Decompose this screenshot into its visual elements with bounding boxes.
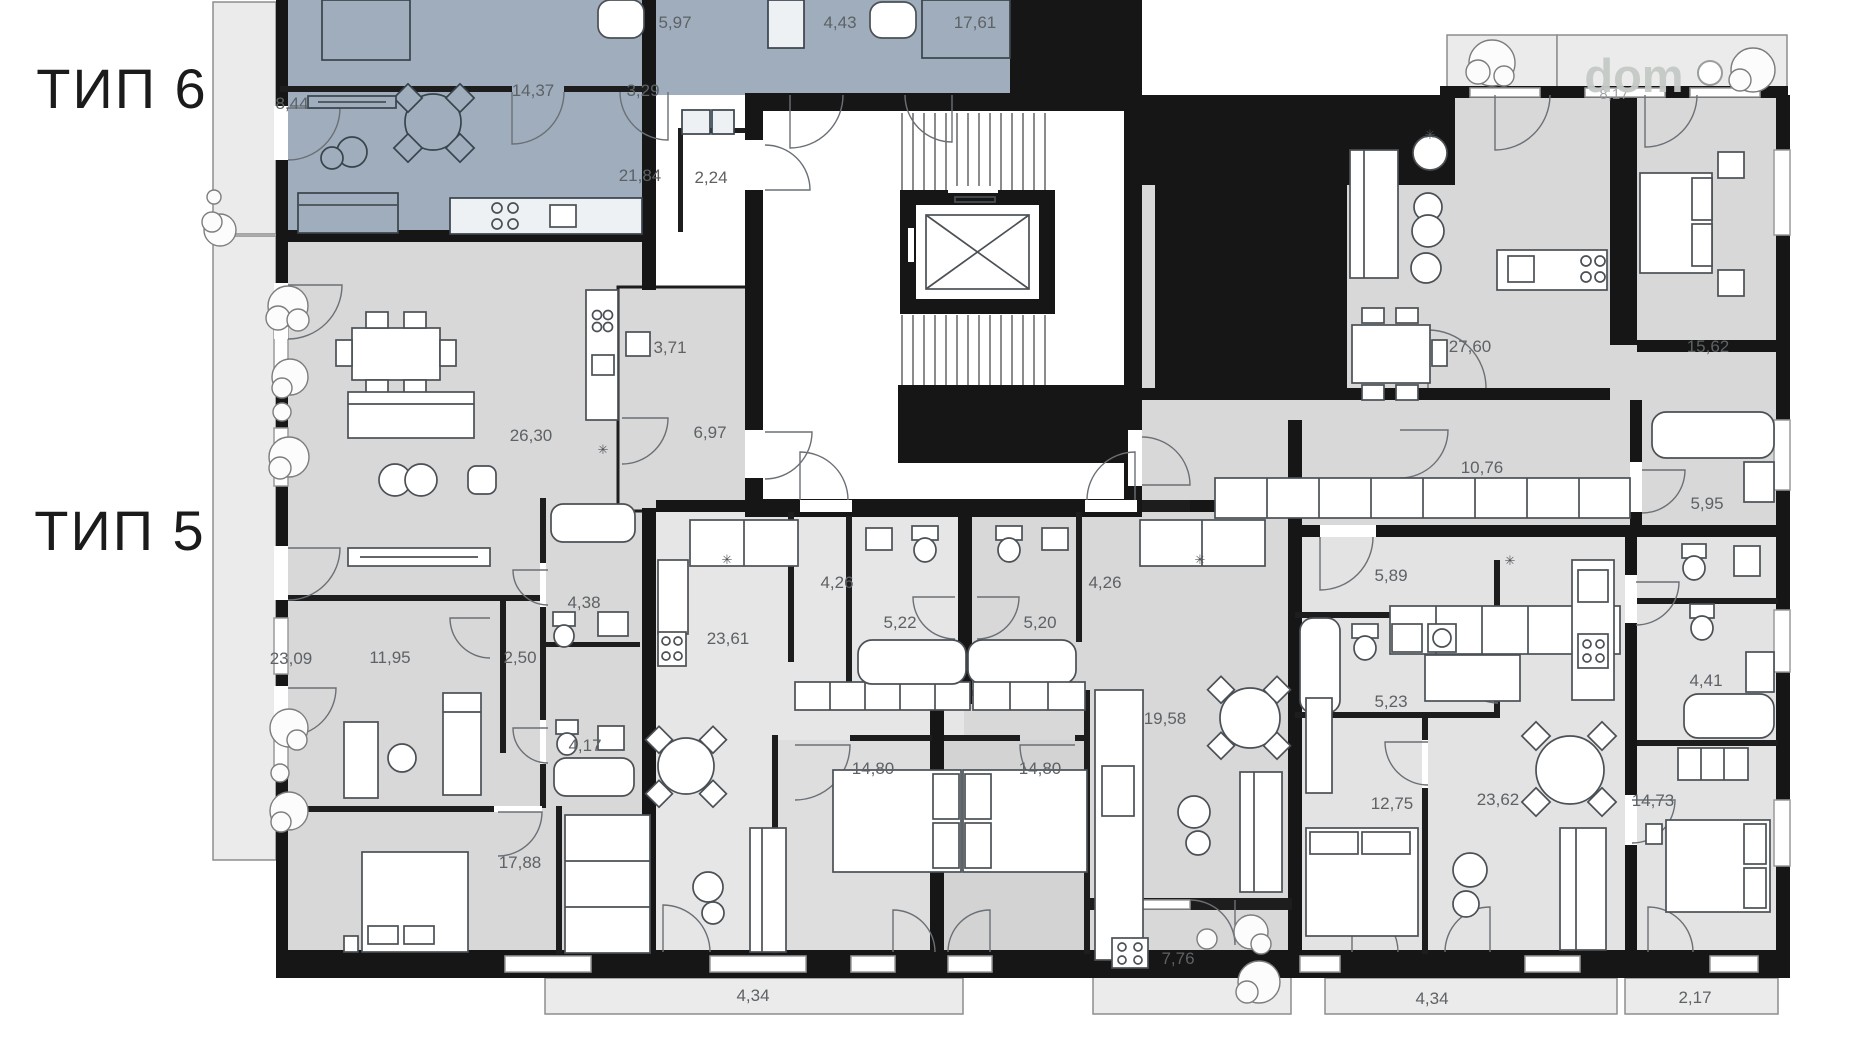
dining-table-icon bbox=[352, 328, 440, 380]
dom-logo-circle bbox=[1698, 61, 1722, 85]
area-label: 2,50 bbox=[503, 648, 536, 667]
area-label: 21,84 bbox=[619, 166, 662, 185]
vent-symbol: ✳ bbox=[1425, 127, 1436, 142]
area-label: 7,76 bbox=[1161, 949, 1194, 968]
area-label: 5,89 bbox=[1374, 566, 1407, 585]
sink-icon bbox=[1744, 462, 1774, 502]
area-label: 4,17 bbox=[568, 736, 601, 755]
area-label: 8,44 bbox=[275, 94, 308, 113]
wardrobe-icon bbox=[1215, 478, 1630, 518]
area-label: 4,34 bbox=[736, 986, 769, 1005]
sink-icon bbox=[1392, 624, 1422, 652]
type6-balcony bbox=[213, 2, 276, 234]
desk-icon bbox=[344, 722, 378, 798]
pouf-icon bbox=[693, 872, 723, 902]
dining-table-icon bbox=[1352, 325, 1430, 383]
area-label: 19,58 bbox=[1144, 709, 1187, 728]
sink-icon bbox=[1102, 766, 1134, 816]
type6-title: ТИП 6 bbox=[36, 57, 207, 120]
stove-icon bbox=[658, 632, 686, 666]
shelf-icon bbox=[1560, 828, 1606, 950]
vent-symbol: ✳ bbox=[1505, 553, 1516, 568]
type5-balcony bbox=[213, 236, 276, 860]
shelf-icon bbox=[1306, 698, 1332, 793]
area-label: 12,75 bbox=[1371, 794, 1414, 813]
vent-symbol: ✳ bbox=[598, 442, 609, 457]
area-label: 6,97 bbox=[693, 423, 726, 442]
stair-core bbox=[763, 111, 1128, 499]
dining-table-icon bbox=[1536, 736, 1604, 804]
shelf-icon bbox=[750, 828, 786, 952]
wardrobe-icon bbox=[795, 682, 970, 710]
area-label: 2,17 bbox=[1678, 988, 1711, 1007]
bathtub-icon bbox=[554, 758, 634, 796]
area-label: 4,41 bbox=[1689, 671, 1722, 690]
core-lower-mass bbox=[898, 385, 1128, 463]
area-label: 14,37 bbox=[512, 81, 555, 100]
area-label: 15,62 bbox=[1687, 337, 1730, 356]
chair-icon bbox=[388, 744, 416, 772]
wardrobe-icon bbox=[973, 682, 1085, 710]
stove-icon bbox=[1578, 634, 1608, 668]
dom-logo: dom bbox=[1584, 49, 1683, 102]
single-bed-icon bbox=[443, 693, 481, 795]
area-label: 4,38 bbox=[567, 593, 600, 612]
pouf-icon bbox=[1178, 796, 1210, 828]
area-label: 4,34 bbox=[1415, 989, 1448, 1008]
area-label: 5,23 bbox=[1374, 692, 1407, 711]
vent-symbol: ✳ bbox=[722, 552, 733, 567]
area-label: 5,95 bbox=[1690, 494, 1723, 513]
kitchen-counter-icon bbox=[1425, 655, 1520, 701]
bathtub-icon bbox=[870, 2, 916, 38]
sink-icon bbox=[1578, 570, 1608, 602]
area-label: 27,60 bbox=[1449, 337, 1492, 356]
bathtub-icon bbox=[598, 0, 644, 38]
bed-icon bbox=[322, 0, 410, 60]
wardrobe-icon bbox=[565, 815, 650, 953]
vent-symbol: ✳ bbox=[1195, 552, 1206, 567]
area-label: 10,76 bbox=[1461, 458, 1504, 477]
area-label: 4,26 bbox=[820, 573, 853, 592]
area-label: 2,24 bbox=[694, 168, 727, 187]
toilet-icon bbox=[998, 538, 1020, 562]
sofa-icon bbox=[1350, 150, 1398, 278]
area-label: 14,80 bbox=[1019, 759, 1062, 778]
sink-icon bbox=[1746, 652, 1774, 692]
sink-icon bbox=[1042, 528, 1068, 550]
bathtub-icon bbox=[858, 640, 966, 684]
stove-icon bbox=[1112, 938, 1148, 968]
area-label: 4,43 bbox=[823, 13, 856, 32]
area-label: 5,20 bbox=[1023, 613, 1056, 632]
bathtub-icon bbox=[968, 640, 1076, 684]
area-label: 3,29 bbox=[626, 81, 659, 100]
sink-icon bbox=[598, 612, 628, 636]
type5-title: ТИП 5 bbox=[34, 499, 205, 562]
bathtub-icon bbox=[1684, 694, 1774, 738]
floor-plan-svg: ✳ ✳ ✳ ✳ ✳ 8,44 14,37 3,29 5,97 4,43 17,6… bbox=[0, 0, 1850, 1040]
toilet-icon bbox=[1683, 556, 1705, 580]
sink-icon bbox=[598, 726, 624, 750]
area-label: 17,61 bbox=[954, 13, 997, 32]
area-label: 23,61 bbox=[707, 629, 750, 648]
washer-icon bbox=[1734, 546, 1760, 576]
pouf-icon bbox=[1453, 853, 1487, 887]
bottom-balcony-right-a bbox=[1325, 978, 1617, 1014]
sofa-icon bbox=[298, 193, 398, 233]
wardrobe-icon bbox=[1678, 748, 1748, 780]
bed-icon bbox=[344, 852, 468, 952]
kitchen-icon bbox=[1497, 250, 1607, 290]
toilet-icon bbox=[914, 538, 936, 562]
toilet-icon bbox=[554, 625, 574, 647]
area-label: 26,30 bbox=[510, 426, 553, 445]
floor-plan-page: ✳ ✳ ✳ ✳ ✳ 8,44 14,37 3,29 5,97 4,43 17,6… bbox=[0, 0, 1850, 1040]
bed-icon bbox=[1306, 828, 1418, 936]
toilet-icon bbox=[1354, 636, 1376, 660]
elevator-shaft bbox=[900, 186, 1055, 314]
sofa-icon bbox=[1240, 772, 1282, 892]
type5-kitchen-annex bbox=[618, 287, 758, 511]
area-label: 5,22 bbox=[883, 613, 916, 632]
sofa-icon bbox=[348, 392, 474, 438]
area-label: 11,95 bbox=[369, 648, 410, 667]
area-label: 3,71 bbox=[653, 338, 686, 357]
toilet-icon bbox=[1691, 616, 1713, 640]
closet-icon bbox=[768, 0, 804, 48]
bed-icon bbox=[963, 770, 1087, 872]
area-label: 14,80 bbox=[852, 759, 895, 778]
bathtub-icon bbox=[1652, 412, 1774, 458]
bed-icon bbox=[833, 770, 961, 872]
area-label: 23,09 bbox=[270, 649, 313, 668]
area-label: 4,26 bbox=[1088, 573, 1121, 592]
area-label: 14,73 bbox=[1632, 791, 1675, 810]
kitchen-icon bbox=[450, 198, 642, 234]
area-label: 17,88 bbox=[499, 853, 542, 872]
area-label: 23,62 bbox=[1477, 790, 1520, 809]
sink-icon bbox=[866, 528, 892, 550]
area-label: 5,97 bbox=[658, 13, 691, 32]
bathtub-icon bbox=[551, 504, 635, 542]
